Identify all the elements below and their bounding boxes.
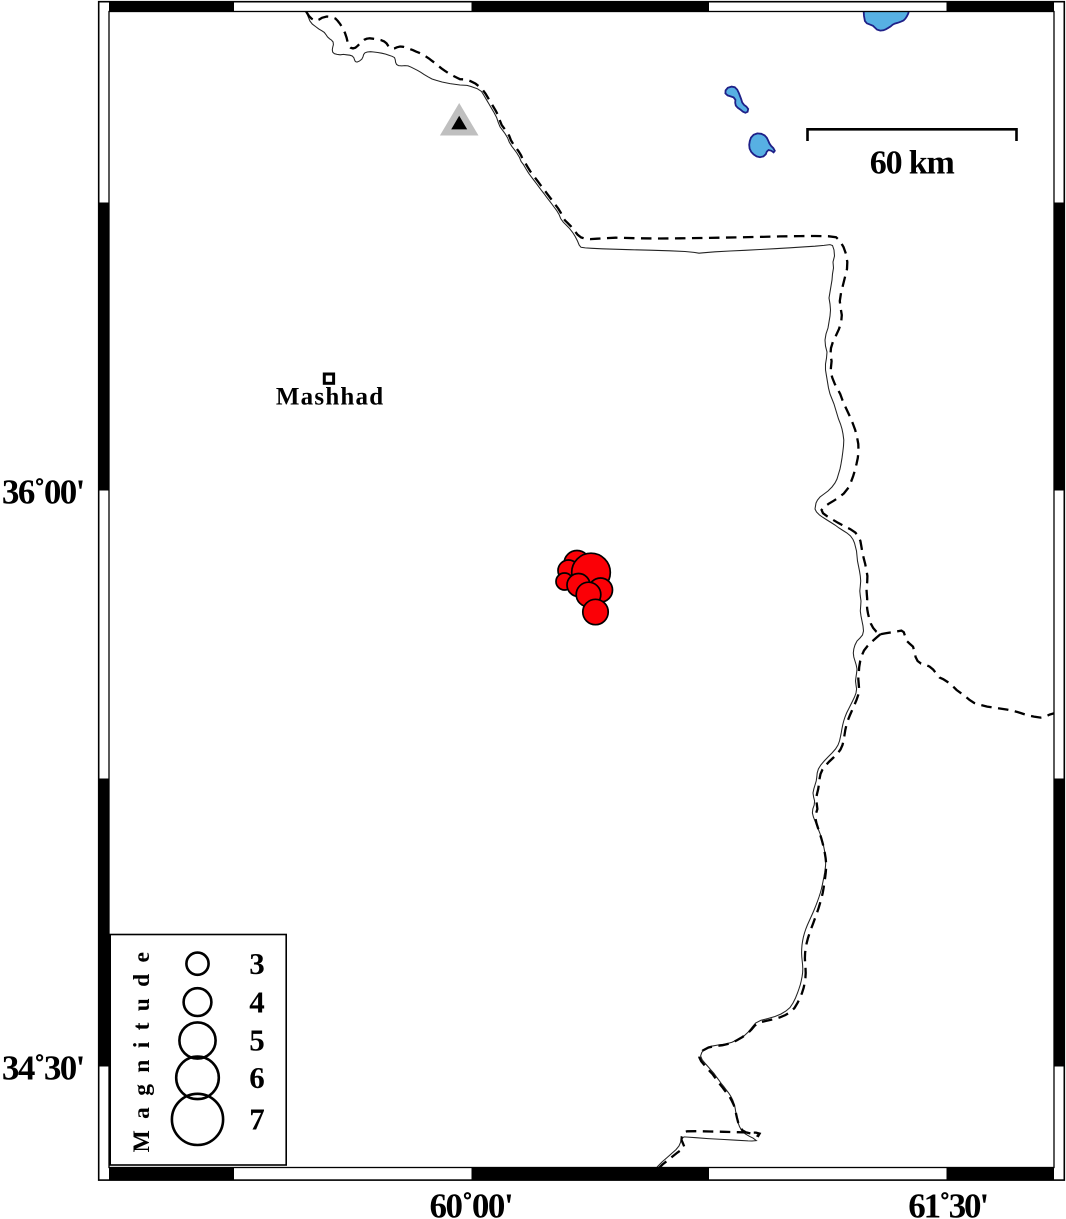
svg-text:60˚00': 60˚00': [430, 1187, 514, 1219]
svg-text:5: 5: [249, 1023, 265, 1058]
svg-text:3: 3: [249, 946, 265, 981]
svg-text:36˚00': 36˚00': [2, 472, 85, 511]
svg-text:4: 4: [249, 984, 265, 1019]
svg-text:6: 6: [249, 1060, 265, 1095]
svg-text:7: 7: [249, 1102, 265, 1137]
svg-text:34˚30': 34˚30': [2, 1048, 85, 1087]
svg-text:60 km: 60 km: [870, 145, 955, 182]
svg-text:61˚30': 61˚30': [908, 1187, 989, 1219]
svg-text:M a g n i t u d e: M a g n i t u d e: [129, 952, 155, 1152]
svg-text:Mashhad: Mashhad: [276, 383, 383, 410]
